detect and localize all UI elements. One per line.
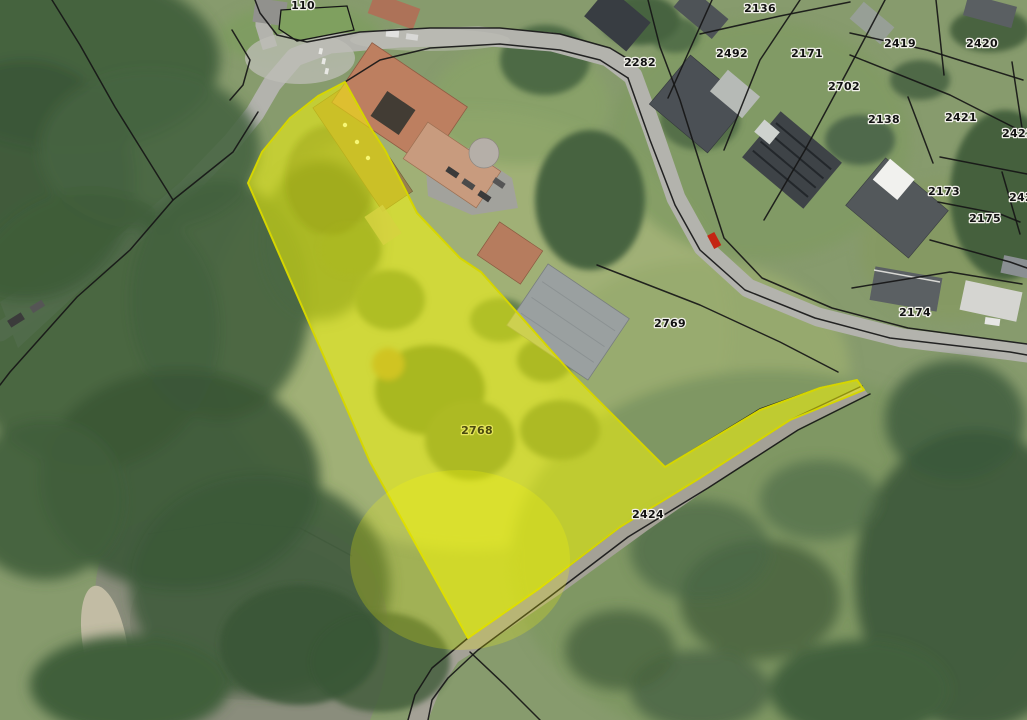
aerial-cadastral-map[interactable]: 1102136228224922171241924202702213824212… bbox=[0, 0, 1027, 720]
parcel-label-2422: 2422 bbox=[1002, 127, 1027, 140]
parcel-label-2421: 2421 bbox=[945, 111, 977, 124]
parcel-label-2492: 2492 bbox=[716, 47, 748, 60]
parcel-label-2768: 2768 bbox=[461, 424, 493, 437]
map-canvas: 1102136228224922171241924202702213824212… bbox=[0, 0, 1027, 720]
parcel-label-2420: 2420 bbox=[966, 37, 998, 50]
parcel-label-242: 242 bbox=[1009, 191, 1027, 204]
parcel-label-2175: 2175 bbox=[969, 212, 1001, 225]
parcel-label-2136: 2136 bbox=[744, 2, 776, 15]
parcel-label-2419: 2419 bbox=[884, 37, 916, 50]
parcel-label-2173: 2173 bbox=[928, 185, 960, 198]
parcel-label-110: 110 bbox=[291, 0, 315, 12]
parcel-label-2424: 2424 bbox=[632, 508, 664, 521]
parcel-label-2769: 2769 bbox=[654, 317, 686, 330]
rotunda-roof bbox=[469, 138, 499, 168]
parcel-label-2174: 2174 bbox=[899, 306, 931, 319]
parcel-label-2282: 2282 bbox=[624, 56, 656, 69]
parcel-label-2171: 2171 bbox=[791, 47, 823, 60]
parcel-label-2138: 2138 bbox=[868, 113, 900, 126]
parcel-label-2702: 2702 bbox=[828, 80, 860, 93]
highlight-sunlit-patch bbox=[350, 470, 570, 650]
